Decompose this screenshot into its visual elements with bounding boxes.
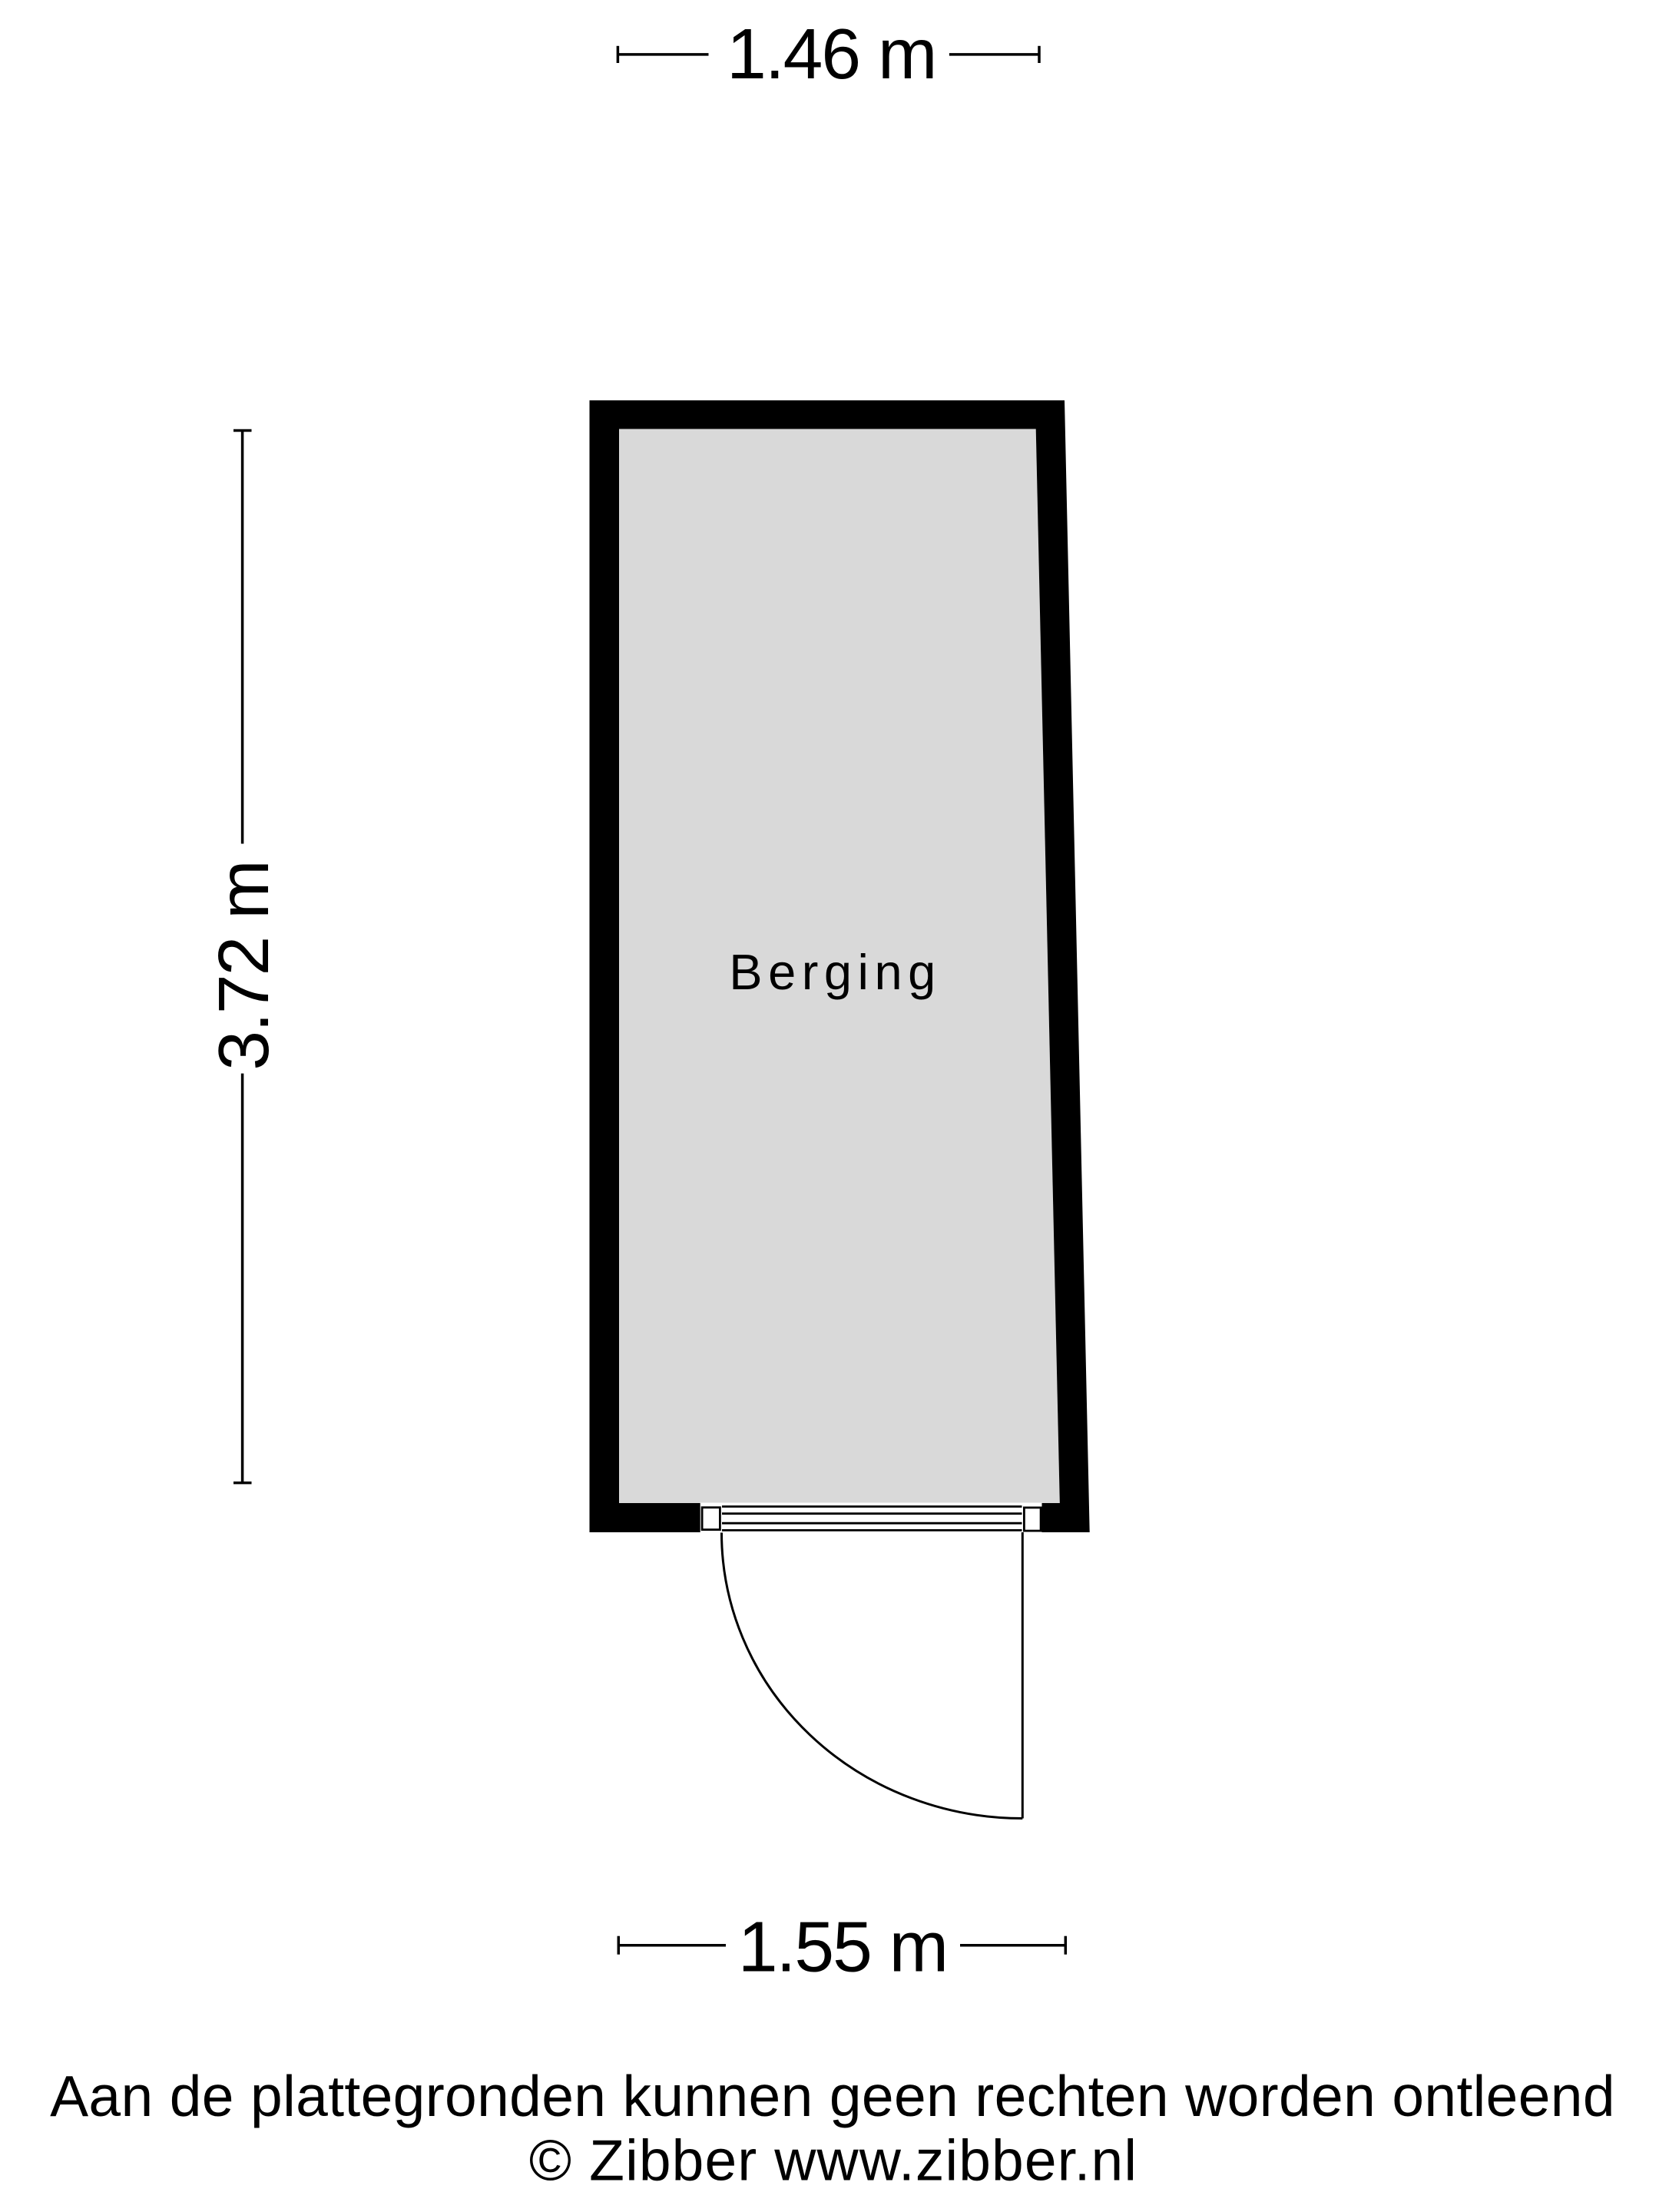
svg-text:© Zibber www.zibber.nl: © Zibber www.zibber.nl: [529, 2128, 1137, 2193]
svg-text:Berging: Berging: [729, 944, 942, 1000]
svg-text:3.72 m: 3.72 m: [204, 861, 283, 1070]
svg-text:Aan de plattegronden kunnen ge: Aan de plattegronden kunnen geen rechten…: [50, 2064, 1615, 2128]
svg-text:1.46 m: 1.46 m: [727, 14, 935, 94]
svg-text:1.55 m: 1.55 m: [738, 1907, 947, 1987]
